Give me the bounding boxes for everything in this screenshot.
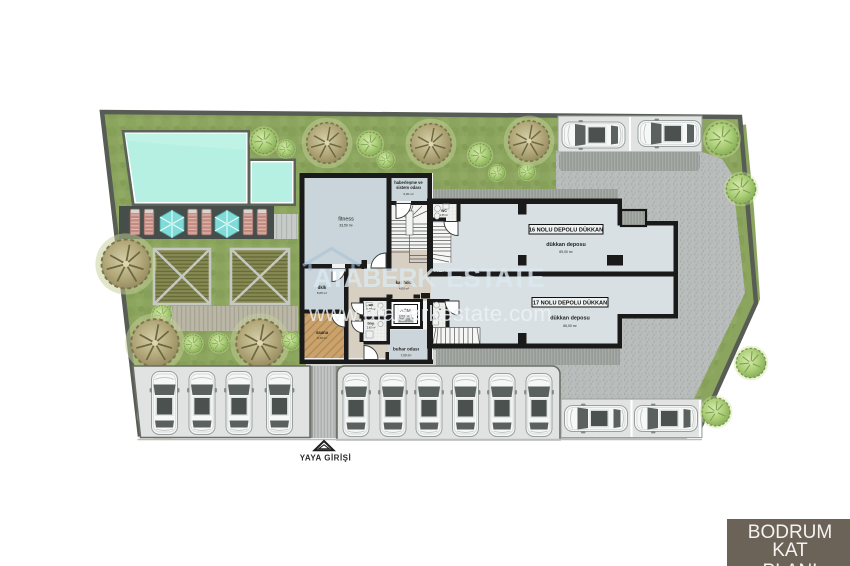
svg-text:dükkan deposu: dükkan deposu — [550, 316, 590, 322]
svg-text:16 NOLU DEPOLU DÜKKAN: 16 NOLU DEPOLU DÜKKAN — [529, 227, 603, 234]
svg-text:66,00 m²: 66,00 m² — [563, 324, 577, 328]
svg-text:www.ataberkestate.com: www.ataberkestate.com — [308, 301, 552, 326]
svg-text:9,70 m²: 9,70 m² — [317, 336, 327, 340]
svg-text:dükkan deposu: dükkan deposu — [546, 242, 586, 248]
svg-text:ESTATE: ESTATE — [446, 263, 544, 293]
svg-text:69,00 m²: 69,00 m² — [559, 250, 573, 254]
svg-text:sistem odası: sistem odası — [396, 185, 421, 190]
svg-text:2,60 m²: 2,60 m² — [367, 326, 376, 330]
svg-text:buhar odası: buhar odası — [393, 347, 419, 352]
svg-text:YAYA GİRİŞİ: YAYA GİRİŞİ — [300, 454, 351, 463]
svg-text:6,00 m²: 6,00 m² — [403, 192, 413, 196]
svg-text:PLANI: PLANI — [763, 561, 818, 566]
svg-text:2,05 m²: 2,05 m² — [440, 214, 448, 217]
svg-text:fitness: fitness — [338, 217, 354, 223]
svg-text:WC: WC — [441, 209, 447, 213]
svg-text:7,00 m²: 7,00 m² — [401, 354, 412, 358]
svg-text:ATABERK: ATABERK — [313, 263, 436, 293]
svg-text:sauna: sauna — [316, 330, 329, 335]
svg-text:KAT: KAT — [772, 540, 808, 561]
svg-text:33,50 m²: 33,50 m² — [339, 224, 353, 228]
